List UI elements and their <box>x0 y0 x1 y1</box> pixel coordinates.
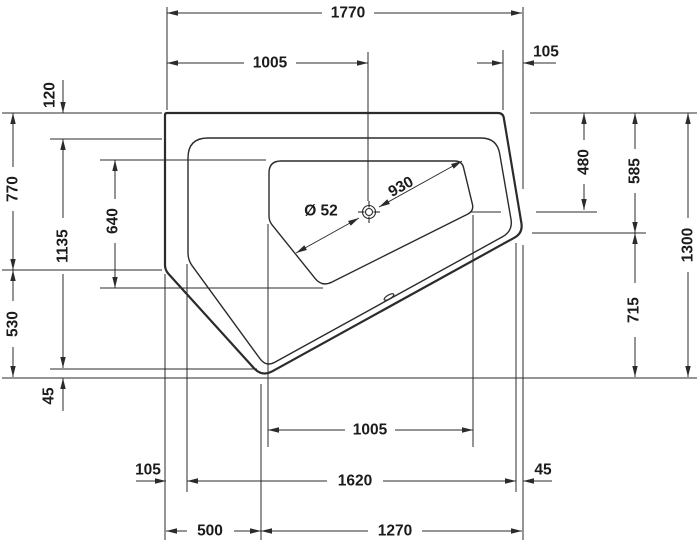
dimension-label: 120 <box>42 82 59 108</box>
dimension-label: 1300 <box>680 228 697 262</box>
dimension-640: 640 <box>105 160 122 288</box>
dimension-arrowhead <box>166 528 177 533</box>
dimension-label: 45 <box>41 387 58 405</box>
dimension-770: 770 <box>5 113 22 270</box>
dimension-arrowhead <box>581 113 586 124</box>
dimension-480: 480 <box>576 113 593 210</box>
dimension-label: Ø 52 <box>304 203 338 220</box>
dimension-arrowhead <box>60 102 65 113</box>
dimension-arrowhead <box>167 10 178 15</box>
dimension-arrowhead <box>632 366 637 377</box>
dimension-label: 105 <box>533 44 559 61</box>
dimension-arrowhead <box>60 357 65 368</box>
basin-contour <box>269 161 473 284</box>
dimension-label: 1620 <box>338 473 372 490</box>
dimension-label: 585 <box>627 158 644 184</box>
dimension-arrowhead <box>155 478 166 483</box>
dimension-arrowhead <box>511 528 522 533</box>
dimension-arrowhead <box>167 60 178 65</box>
dimension-label: 480 <box>576 149 593 175</box>
dimension-arrowhead <box>511 10 522 15</box>
dimension-label: 1770 <box>331 5 365 22</box>
dimension-arrowhead <box>250 528 261 533</box>
dimension-715: 715 <box>626 233 643 377</box>
dimension-label: 640 <box>105 208 122 234</box>
dimension-105: 105 <box>135 462 166 484</box>
dimension-45: 45 <box>523 462 552 484</box>
dimension-arrowhead <box>10 270 15 281</box>
dimension-label: 1005 <box>253 55 288 72</box>
drain-symbol <box>358 201 380 223</box>
tub-rim-contour <box>188 138 511 364</box>
dimension-label: 770 <box>5 176 22 202</box>
dimension-arrowhead <box>268 427 279 432</box>
dimension-arrowhead <box>378 199 390 209</box>
dimension-1135: 1135 <box>55 139 72 368</box>
dimension-arrowhead <box>632 113 637 124</box>
dimension-label: 1005 <box>353 422 388 439</box>
dimension-1770: 1770 <box>167 5 522 22</box>
dimension-arrowhead <box>10 259 15 270</box>
dimension-arrowhead <box>261 528 272 533</box>
bathtub-shapes <box>165 113 522 373</box>
dimension-arrowhead <box>523 60 534 65</box>
dimension-label: 1270 <box>378 523 412 540</box>
dimension-arrowhead <box>632 233 637 244</box>
dimension-label: 530 <box>5 311 22 337</box>
dimension-1005: 1005 <box>167 55 368 72</box>
dimension-1270: 1270 <box>261 523 522 540</box>
drain-inner-circle <box>366 209 373 216</box>
dimension-arrowhead <box>685 113 690 124</box>
dimension-arrowhead <box>348 216 360 226</box>
dimension-arrowhead <box>462 427 473 432</box>
tub-outer-outline <box>165 113 522 373</box>
dimension-arrowhead <box>60 139 65 150</box>
dimension-arrowhead <box>523 478 534 483</box>
dimension-arrowhead <box>10 113 15 124</box>
dimension-arrowhead <box>112 160 117 171</box>
dimension-arrowhead <box>60 378 65 389</box>
dimension-120: 120 <box>42 80 66 113</box>
dimension-label: 105 <box>135 462 161 479</box>
dimension-arrowhead <box>295 245 307 255</box>
dimension-arrowhead <box>492 60 503 65</box>
drawing-canvas: 1770100510512077011355304564048058513007… <box>0 0 700 547</box>
overflow-slot <box>383 293 395 302</box>
dimension-ø-52: Ø 52 <box>304 203 338 220</box>
dimension-arrowhead <box>685 366 690 377</box>
dimension-585: 585 <box>627 113 644 233</box>
dimension-45: 45 <box>41 378 66 411</box>
dimension-arrowhead <box>581 199 586 210</box>
dimension-label: 930 <box>386 173 417 200</box>
dimension-arrowhead <box>10 366 15 377</box>
dimension-arrowhead <box>187 478 198 483</box>
dimension-1005: 1005 <box>268 422 473 439</box>
dimension-530: 530 <box>5 270 22 377</box>
dimension-arrowhead <box>632 222 637 233</box>
dimension-1300: 1300 <box>680 113 697 377</box>
dimension-label: 500 <box>197 523 223 540</box>
technical-drawing: 1770100510512077011355304564048058513007… <box>0 0 700 547</box>
dimension-1620: 1620 <box>187 473 516 490</box>
dimension-arrowhead <box>505 478 516 483</box>
dimension-arrowhead <box>357 60 368 65</box>
dimension-500: 500 <box>166 523 261 540</box>
dimension-label: 45 <box>534 462 552 479</box>
dimension-label: 1135 <box>55 229 72 263</box>
dimension-105: 105 <box>477 44 559 66</box>
dimension-arrowhead <box>112 277 117 288</box>
dimension-label: 715 <box>626 297 643 323</box>
